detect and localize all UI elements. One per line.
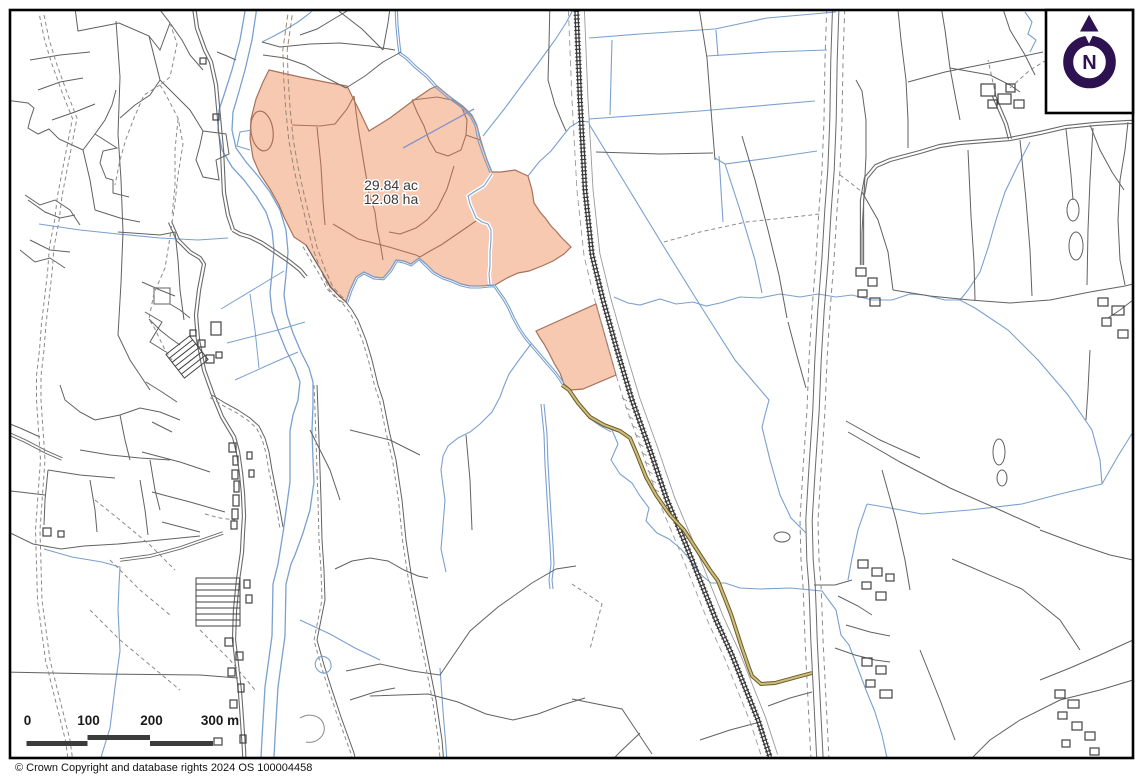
svg-text:200: 200 [140, 713, 163, 728]
svg-text:N: N [1082, 52, 1096, 74]
svg-text:300 m: 300 m [201, 713, 239, 728]
svg-text:© Crown Copyright and database: © Crown Copyright and database rights 20… [15, 762, 312, 774]
svg-text:100: 100 [77, 713, 100, 728]
svg-text:0: 0 [24, 713, 32, 728]
svg-text:12.08 ha: 12.08 ha [364, 191, 419, 207]
